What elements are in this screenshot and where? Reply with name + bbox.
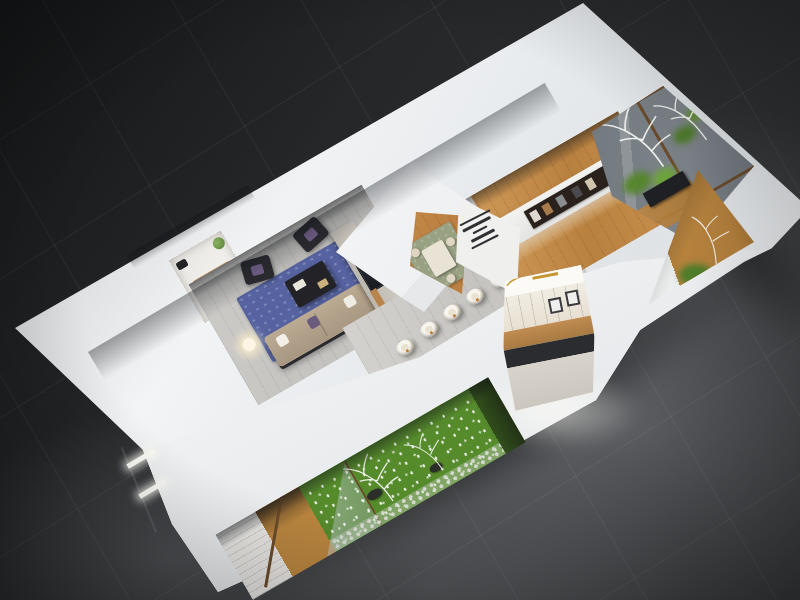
book-prop [317,278,329,289]
art-object [555,194,567,208]
backlit-display-panel [500,260,600,416]
chair-cushion [405,349,409,353]
pillow [306,315,321,330]
pillow [343,294,358,309]
art-object [571,185,583,199]
text-line [471,234,499,250]
chair-cushion [429,331,433,335]
chair-cushion [475,298,479,302]
chair-cushion [452,314,456,318]
pillow [275,333,290,348]
panel-picture-frame [548,297,564,314]
exhibition-hall-scene [0,0,800,600]
art-object [585,177,597,191]
panel-picture-frame [565,290,581,307]
art-object [541,202,553,216]
art-object [529,209,541,223]
